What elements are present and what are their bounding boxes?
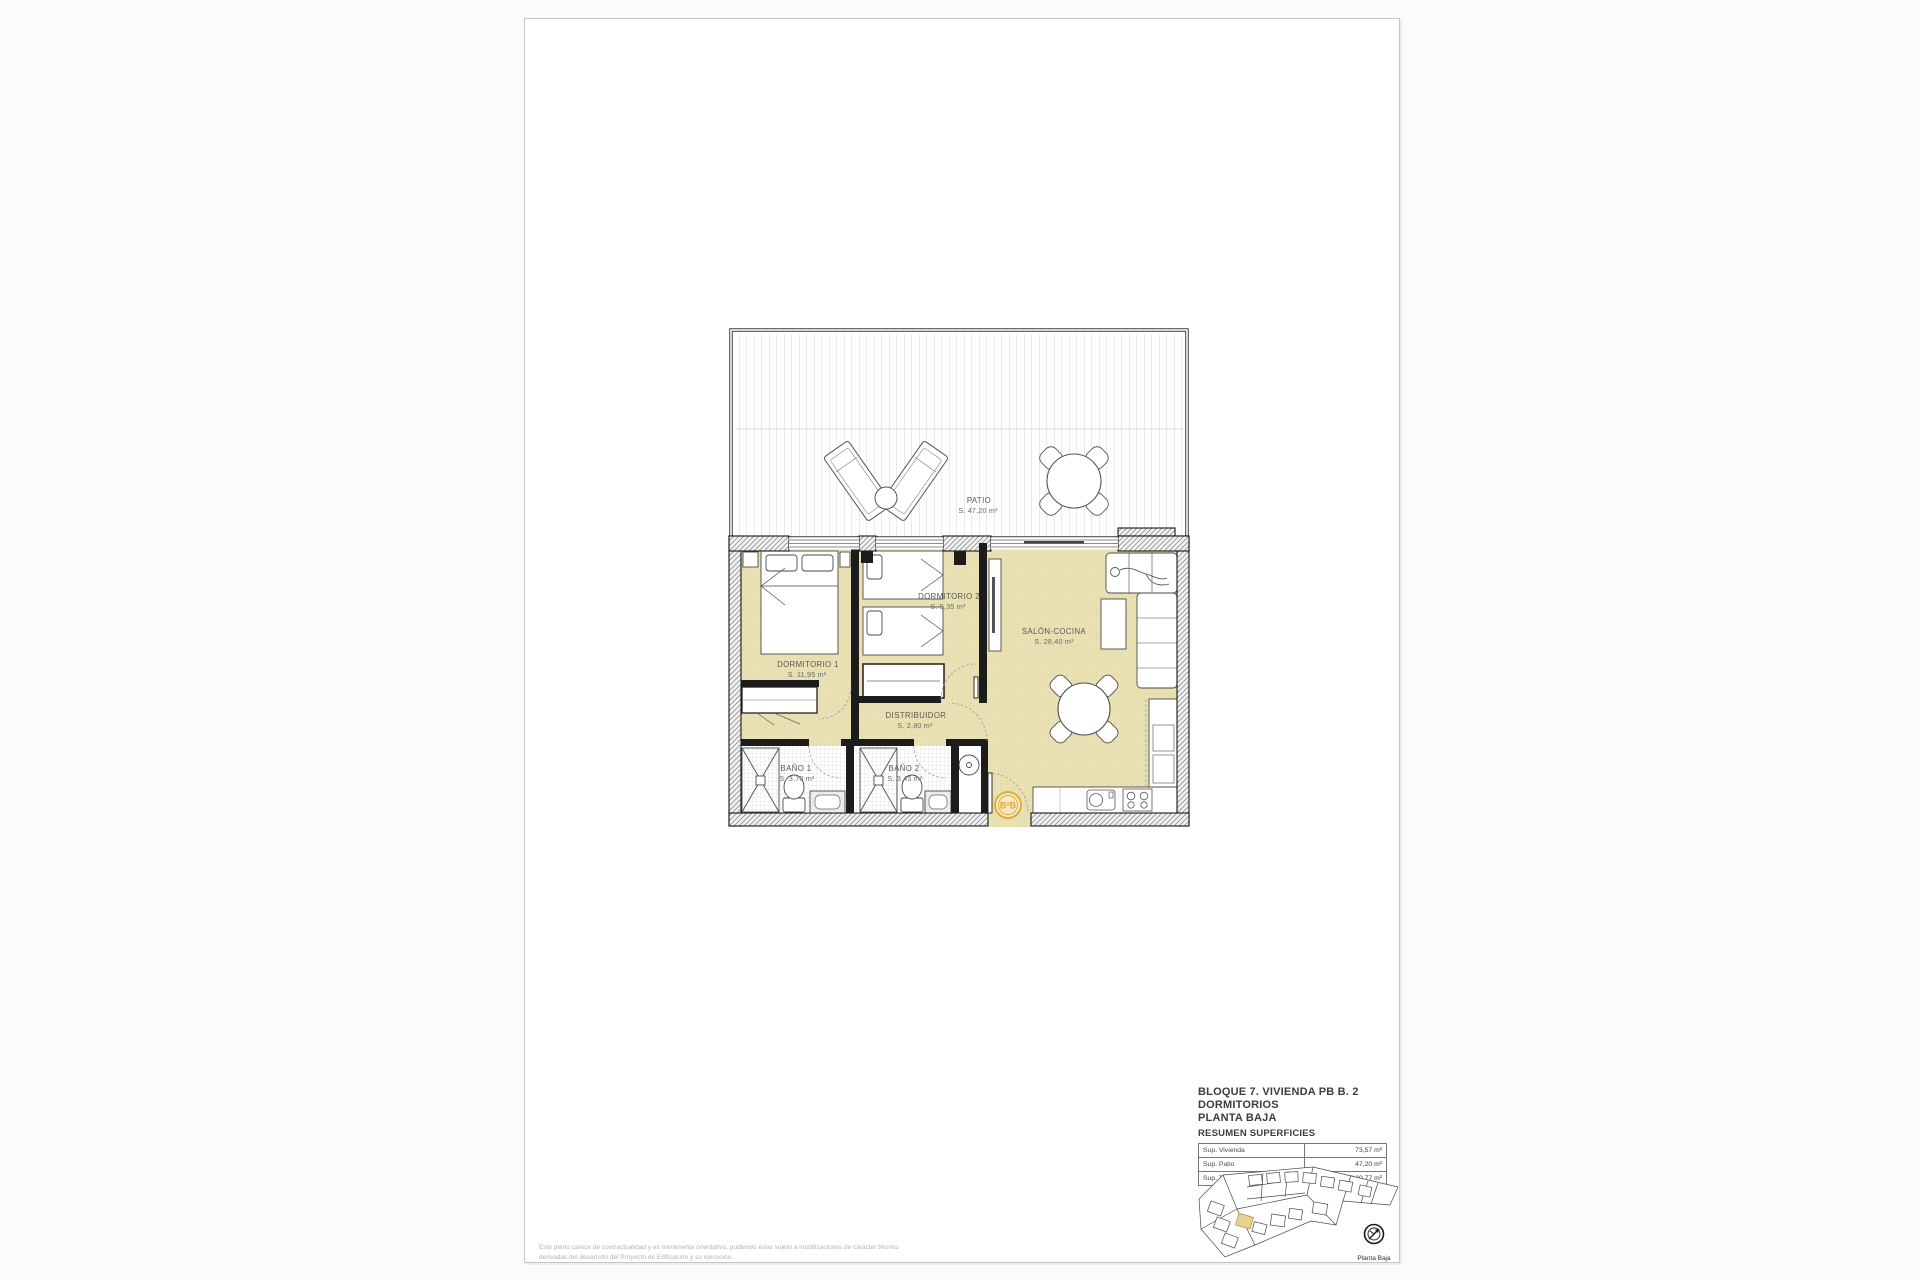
cooktop bbox=[1123, 789, 1152, 811]
nightstand bbox=[743, 552, 758, 567]
double-bed bbox=[761, 551, 838, 654]
screenshot-canvas: BºB PATIO S. 47,20 m² DORMITORIO 1 S. 11… bbox=[0, 0, 1920, 1280]
coffee-table bbox=[1101, 599, 1126, 649]
water-heater bbox=[959, 755, 979, 775]
title-line-2: PLANTA BAJA bbox=[1198, 1112, 1398, 1125]
north-arrow-icon bbox=[1365, 1225, 1384, 1244]
salon-name: SALÓN-COCINA bbox=[1022, 627, 1087, 636]
kitchen-sink bbox=[1087, 790, 1115, 810]
patio-side-table bbox=[875, 487, 897, 509]
key-plan: Planta Baja bbox=[1193, 1163, 1405, 1265]
dormitorio1-name: DORMITORIO 1 bbox=[777, 660, 839, 669]
table-row: Sup. Vivienda 73,57 m² bbox=[1199, 1144, 1387, 1158]
wardrobe bbox=[863, 664, 944, 698]
distribuidor-name: DISTRIBUIDOR bbox=[886, 711, 947, 720]
nightstand bbox=[840, 552, 850, 567]
distribuidor-area: S. 2,80 m² bbox=[897, 721, 933, 730]
room-label-bano-1: BAÑO 1 S. 3,70 m² bbox=[779, 764, 815, 783]
site-plan-outline bbox=[1199, 1167, 1398, 1257]
patio-area: S. 47,20 m² bbox=[958, 506, 998, 515]
sliding-glass-door bbox=[991, 538, 1118, 550]
single-bed bbox=[863, 607, 943, 655]
row-value: 73,57 m² bbox=[1304, 1144, 1386, 1158]
window bbox=[789, 538, 859, 550]
salon-area: S. 28,40 m² bbox=[1034, 637, 1074, 646]
dormitorio2-name: DORMITORIO 2 bbox=[918, 592, 980, 601]
key-plan-caption: Planta Baja bbox=[1357, 1255, 1391, 1262]
dining-set bbox=[1048, 673, 1121, 746]
shower bbox=[742, 748, 779, 812]
dormitorio1-area: S. 11,95 m² bbox=[788, 670, 827, 679]
sink bbox=[925, 791, 951, 813]
bano2-area: S. 3,45 m² bbox=[887, 774, 923, 783]
bano1-area: S. 3,70 m² bbox=[779, 774, 815, 783]
sink bbox=[810, 791, 845, 813]
entrance-marker-label: BºB bbox=[1000, 801, 1017, 811]
tv-unit bbox=[989, 559, 1001, 651]
title-line-1: BLOQUE 7. VIVIENDA PB B. 2 DORMITORIOS bbox=[1198, 1086, 1398, 1112]
window bbox=[876, 538, 943, 550]
entrance-marker: BºB bbox=[995, 792, 1021, 818]
room-label-bano-2: BAÑO 2 S. 3,45 m² bbox=[887, 764, 923, 783]
dormitorio2-area: S. 9,35 m² bbox=[930, 602, 966, 611]
patio-name: PATIO bbox=[967, 496, 991, 505]
row-label: Sup. Vivienda bbox=[1199, 1144, 1305, 1158]
title-line-3: RESUMEN SUPERFICIES bbox=[1198, 1128, 1398, 1139]
a4-plan-sheet: BºB PATIO S. 47,20 m² DORMITORIO 1 S. 11… bbox=[524, 18, 1400, 1263]
bano1-name: BAÑO 1 bbox=[781, 764, 812, 773]
patio-dining-set bbox=[1037, 444, 1111, 518]
floor-plan-drawing: BºB PATIO S. 47,20 m² DORMITORIO 1 S. 11… bbox=[724, 321, 1194, 831]
disclaimer-text: Este plano carece de contractualidad y e… bbox=[539, 1243, 924, 1263]
bano2-name: BAÑO 2 bbox=[889, 764, 920, 773]
